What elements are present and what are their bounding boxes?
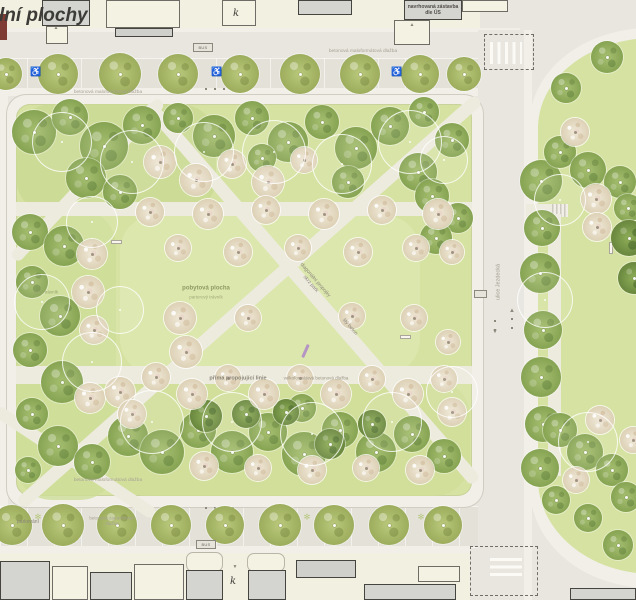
right-street xyxy=(478,30,526,600)
right-path-stub-lower xyxy=(526,367,548,382)
right-path-vertical xyxy=(548,214,561,476)
top-building-band xyxy=(0,0,480,30)
landscape-plan-canvas: BUSBUS ♿♿♿✻✻✻▲▲▼▲▼ ální plochynavrhovaná… xyxy=(0,0,636,600)
park-path-horizontal-lower xyxy=(16,366,472,384)
crosswalk-bottom xyxy=(490,556,522,576)
building-gray xyxy=(570,588,636,600)
top-road xyxy=(0,32,560,58)
lawn-patch xyxy=(110,380,470,496)
crosswalk-top xyxy=(490,42,522,64)
bottom-building-band xyxy=(0,553,470,600)
